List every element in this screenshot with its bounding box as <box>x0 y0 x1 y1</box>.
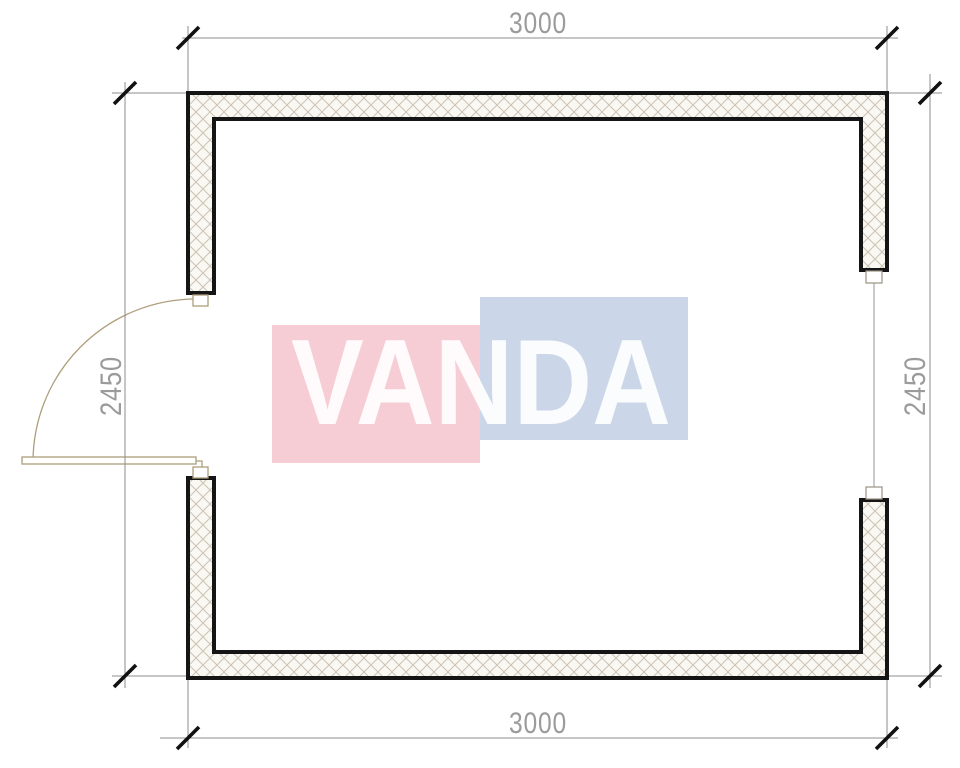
floor-plan-page: VANDA <box>0 0 960 768</box>
floor-plan-drawing: VANDA <box>0 0 960 768</box>
watermark-text: VANDA <box>291 314 671 450</box>
dimension-label-top: 3000 <box>509 7 567 40</box>
door-leaf <box>22 457 196 464</box>
watermark: VANDA <box>272 297 688 463</box>
window-jamb-bottom <box>866 487 882 499</box>
door-jamb-top <box>193 295 208 306</box>
wall-top <box>188 93 887 119</box>
wall-right-upper <box>861 93 887 270</box>
wall-left-lower <box>188 478 214 678</box>
wall-bottom <box>188 652 887 678</box>
dimension-label-left: 2450 <box>95 356 128 416</box>
window-jamb-top <box>866 271 882 283</box>
dimension-label-bottom: 3000 <box>509 707 567 740</box>
wall-left-upper <box>188 93 214 293</box>
door-jamb-bottom <box>193 467 208 478</box>
wall-right-lower <box>861 500 887 678</box>
window <box>866 271 882 499</box>
dimension-label-right: 2450 <box>899 356 932 416</box>
